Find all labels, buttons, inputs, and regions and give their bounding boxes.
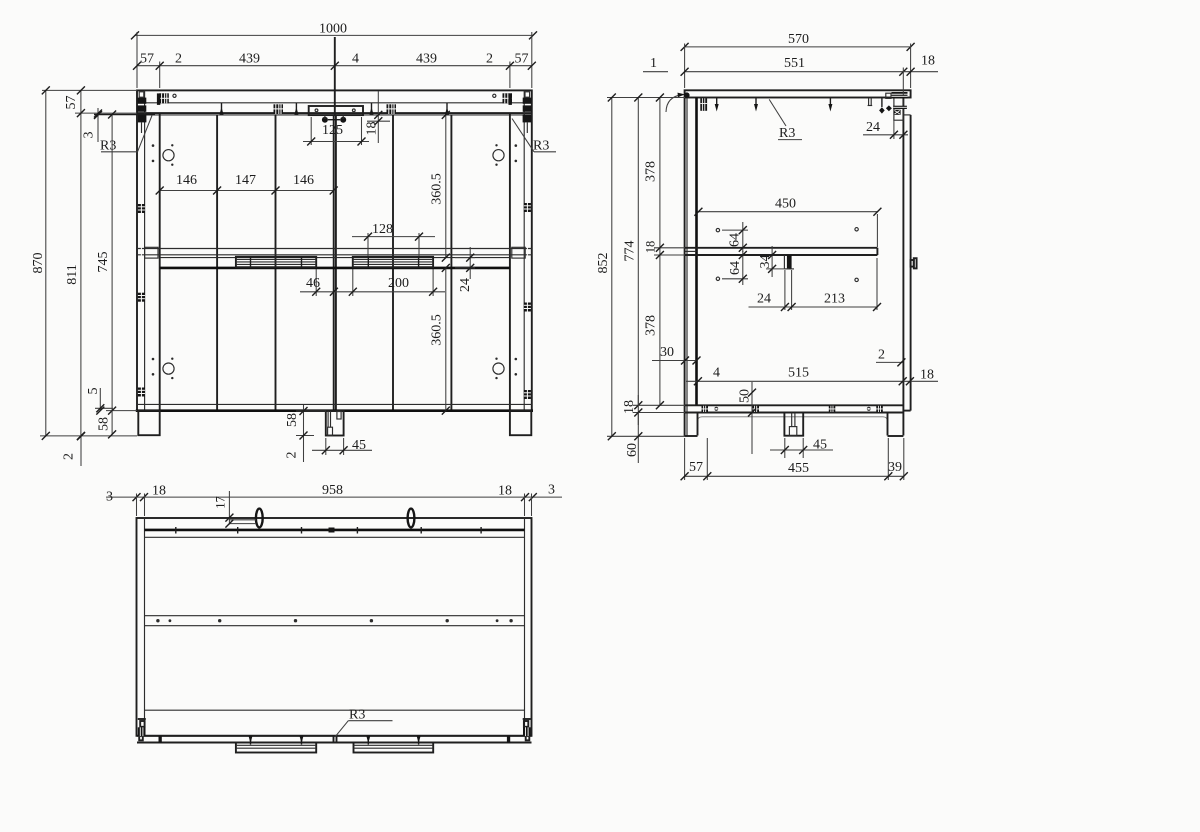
svg-text:18: 18 bbox=[365, 122, 380, 136]
svg-text:5: 5 bbox=[86, 388, 101, 395]
svg-text:58: 58 bbox=[96, 417, 111, 431]
svg-text:18: 18 bbox=[920, 368, 934, 383]
svg-text:4: 4 bbox=[713, 366, 720, 381]
svg-text:34: 34 bbox=[758, 255, 773, 269]
svg-text:870: 870 bbox=[31, 253, 46, 274]
svg-text:852: 852 bbox=[596, 253, 611, 274]
svg-text:125: 125 bbox=[322, 123, 343, 138]
svg-text:3: 3 bbox=[548, 483, 555, 498]
svg-text:18: 18 bbox=[644, 241, 658, 254]
svg-text:64: 64 bbox=[728, 261, 743, 275]
svg-text:2: 2 bbox=[175, 52, 182, 67]
svg-text:60: 60 bbox=[625, 443, 640, 457]
svg-text:128: 128 bbox=[372, 222, 393, 237]
svg-text:64: 64 bbox=[728, 233, 743, 247]
svg-text:3: 3 bbox=[82, 132, 97, 139]
svg-text:200: 200 bbox=[388, 276, 409, 291]
svg-text:18: 18 bbox=[622, 400, 637, 414]
svg-text:3: 3 bbox=[106, 490, 113, 505]
svg-text:515: 515 bbox=[788, 366, 809, 381]
svg-text:958: 958 bbox=[322, 483, 343, 498]
svg-text:R3: R3 bbox=[100, 139, 116, 154]
svg-text:18: 18 bbox=[921, 54, 935, 69]
svg-text:774: 774 bbox=[623, 241, 638, 262]
svg-text:1: 1 bbox=[650, 56, 657, 71]
svg-text:570: 570 bbox=[788, 32, 809, 47]
svg-text:2: 2 bbox=[62, 453, 77, 460]
svg-text:551: 551 bbox=[784, 56, 805, 71]
svg-text:24: 24 bbox=[458, 278, 473, 292]
svg-text:360.5: 360.5 bbox=[430, 173, 445, 205]
svg-text:18: 18 bbox=[152, 484, 166, 499]
svg-text:57: 57 bbox=[64, 96, 79, 110]
svg-text:2: 2 bbox=[486, 52, 493, 67]
svg-text:360.5: 360.5 bbox=[430, 314, 445, 346]
svg-text:17: 17 bbox=[213, 496, 227, 509]
svg-text:439: 439 bbox=[239, 52, 260, 67]
svg-text:46: 46 bbox=[306, 276, 320, 291]
svg-text:39: 39 bbox=[888, 460, 902, 475]
svg-text:24: 24 bbox=[757, 292, 771, 307]
svg-text:R3: R3 bbox=[533, 139, 549, 154]
svg-text:24: 24 bbox=[866, 120, 880, 135]
svg-text:811: 811 bbox=[65, 264, 80, 284]
svg-text:45: 45 bbox=[813, 438, 827, 453]
svg-text:4: 4 bbox=[352, 52, 359, 67]
svg-text:2: 2 bbox=[285, 452, 300, 459]
svg-text:439: 439 bbox=[416, 52, 437, 67]
svg-text:50: 50 bbox=[738, 389, 753, 403]
svg-text:2: 2 bbox=[878, 348, 885, 363]
svg-text:58: 58 bbox=[285, 413, 300, 427]
svg-text:146: 146 bbox=[176, 173, 197, 188]
svg-text:450: 450 bbox=[775, 197, 796, 212]
svg-text:146: 146 bbox=[293, 173, 314, 188]
svg-text:45: 45 bbox=[352, 438, 366, 453]
svg-text:455: 455 bbox=[788, 461, 809, 476]
svg-text:30: 30 bbox=[660, 345, 674, 360]
svg-text:745: 745 bbox=[96, 252, 111, 273]
svg-text:147: 147 bbox=[235, 173, 256, 188]
svg-text:378: 378 bbox=[644, 315, 659, 336]
svg-text:57: 57 bbox=[515, 52, 529, 67]
svg-text:1000: 1000 bbox=[319, 22, 347, 37]
svg-text:57: 57 bbox=[140, 52, 154, 67]
svg-text:378: 378 bbox=[644, 161, 659, 182]
svg-text:18: 18 bbox=[498, 484, 512, 499]
svg-text:57: 57 bbox=[689, 460, 703, 475]
svg-text:213: 213 bbox=[824, 292, 845, 307]
svg-text:R3: R3 bbox=[779, 126, 795, 141]
